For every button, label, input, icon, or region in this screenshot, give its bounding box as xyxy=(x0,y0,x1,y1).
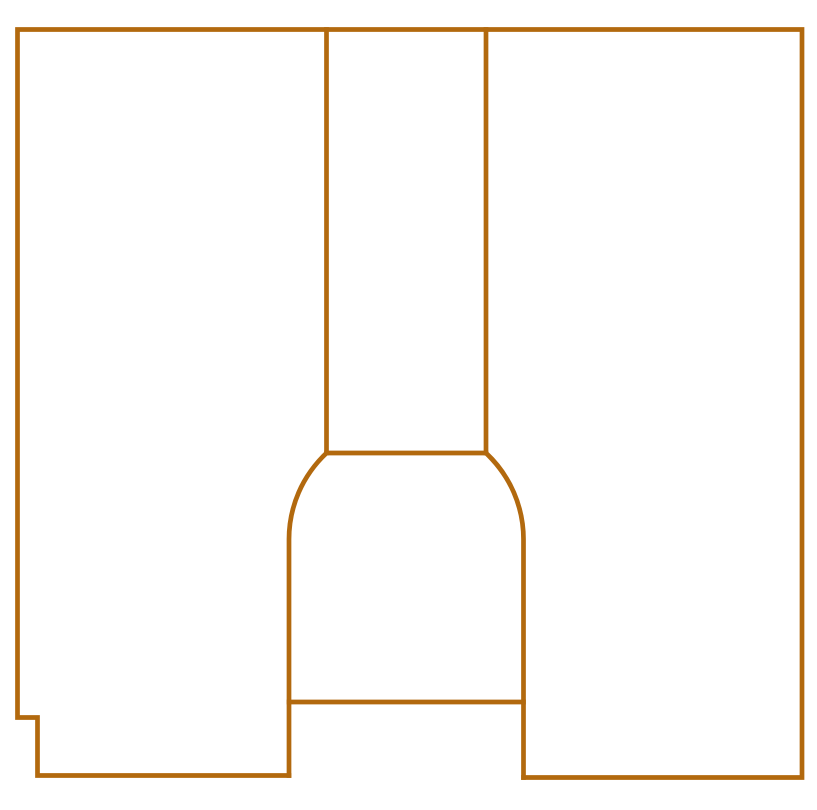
bulb-right-side xyxy=(486,453,524,778)
line-drawing-canvas xyxy=(0,0,817,810)
outer-shell-outline xyxy=(18,30,803,778)
keyhole-slot-diagram xyxy=(0,0,817,810)
bulb-left-side xyxy=(289,453,327,776)
